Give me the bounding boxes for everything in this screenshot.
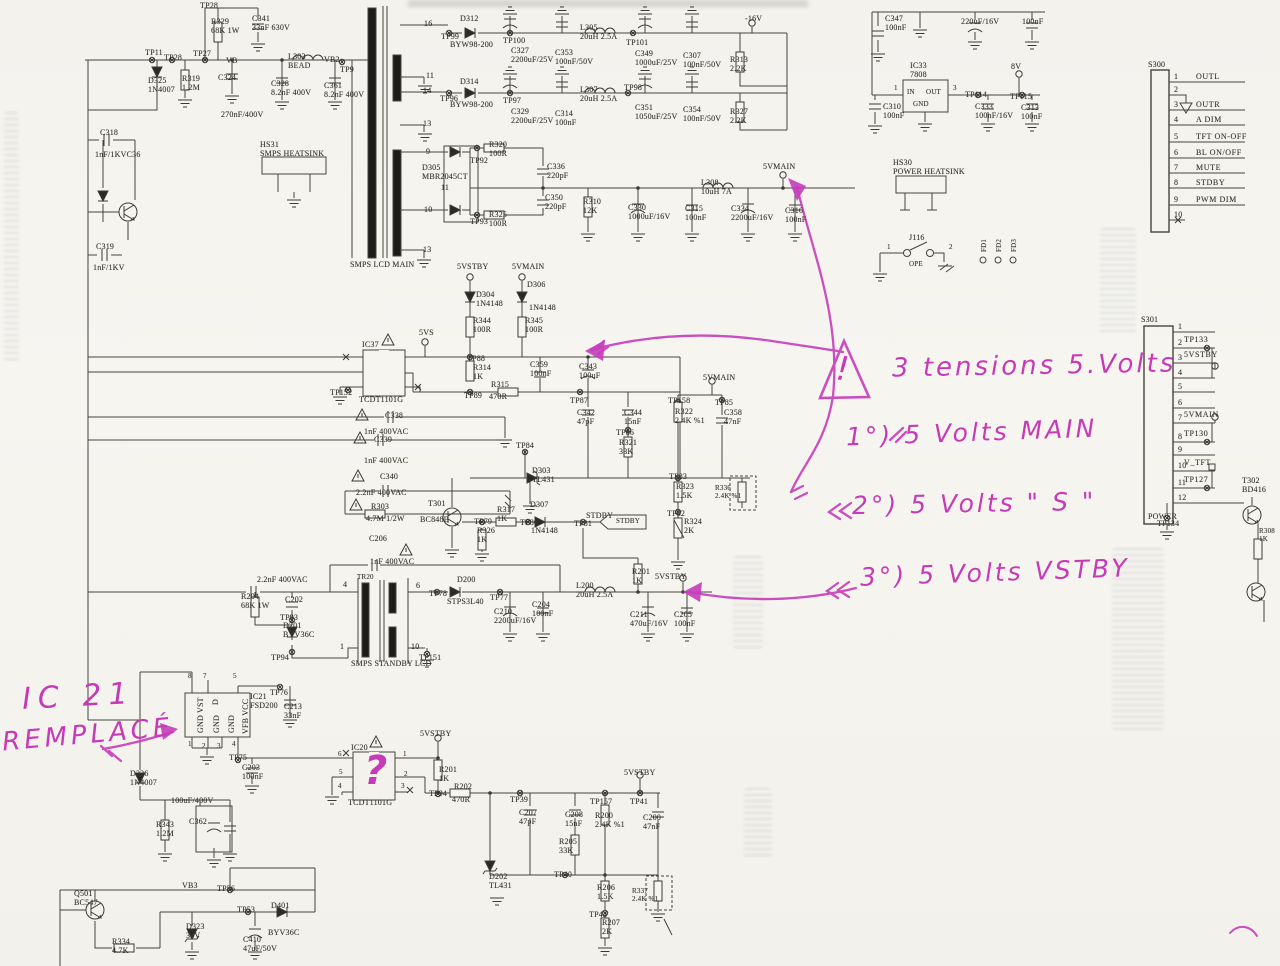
component-label: R334 4.7K <box>112 937 130 956</box>
component-label: TP158 <box>668 396 690 405</box>
component-label: D323 33V <box>186 922 205 941</box>
component-label: FD3 <box>1010 239 1018 252</box>
component-label: TP93 <box>470 217 488 226</box>
component-label: TP28 <box>164 53 182 62</box>
component-label: 4 <box>338 782 342 790</box>
component-label: FD1 <box>980 239 988 252</box>
component-label: -16V <box>745 14 762 23</box>
component-label: C341 33nF 630V <box>252 14 290 33</box>
component-label: 2 <box>949 243 953 251</box>
component-label: C351 1050uF/25V <box>635 103 677 122</box>
component-label: R325 100R <box>489 210 507 229</box>
s301-pin-number: 5 <box>1178 382 1182 391</box>
component-label: C206 <box>369 534 387 543</box>
component-label: R201 1K <box>632 567 650 586</box>
component-label: TP75 <box>229 753 247 762</box>
component-label: R303 <box>371 502 389 511</box>
component-label: TP97 <box>503 96 521 105</box>
component-label: 8V <box>1011 62 1021 71</box>
s300-pin-label: OUTL <box>1196 72 1220 81</box>
component-label: TP40 <box>554 870 572 879</box>
s301-pin-number: 6 <box>1178 398 1182 407</box>
component-label: 3 <box>953 84 957 92</box>
component-label: STDBY <box>586 511 613 520</box>
component-label: 470R <box>452 795 470 804</box>
component-label: FD2 <box>995 239 1003 252</box>
component-label: 1 <box>188 740 192 748</box>
component-label: TP94 <box>271 653 289 662</box>
component-label: IC37 <box>362 340 379 349</box>
component-label: R324 2K <box>684 517 702 536</box>
component-label: 2 <box>404 770 408 778</box>
connector-name-s301: POWER <box>1148 512 1177 521</box>
component-label: C359 100nF <box>530 360 551 379</box>
component-label: 220uF/16V <box>961 17 999 26</box>
component-label: 4.7M 1/2W <box>366 514 405 523</box>
component-label: D314 <box>460 77 479 86</box>
component-label: VB <box>226 56 238 65</box>
component-label: TP56 <box>217 884 235 893</box>
component-label: GND <box>212 715 221 733</box>
component-label: R207 2K <box>602 918 620 937</box>
component-label: C314 100nF <box>555 109 576 128</box>
component-label: C324 <box>218 73 236 82</box>
component-label: C329 2200uF/25V <box>511 107 553 126</box>
component-label: C353 100nF/50V <box>555 48 593 67</box>
component-label: R317 1K <box>497 505 515 524</box>
handwritten-note-item2: 2°) 5 Volts " S " <box>852 487 1097 520</box>
component-label: R336 2.4K %1 <box>715 484 741 501</box>
component-label: 100uF/400V <box>171 796 213 805</box>
component-label: SMPS LCD MAIN <box>350 260 414 269</box>
component-label: 5VSTBY <box>457 262 488 271</box>
component-label: 10 <box>424 205 432 214</box>
component-label: TP101 <box>626 38 648 47</box>
component-label: R308 1K <box>1259 527 1275 544</box>
s301-pin-number: 3 <box>1178 353 1182 362</box>
component-label: TP89 <box>464 391 482 400</box>
handwritten-exclamation: ! <box>835 349 851 389</box>
component-label: 5VSTBY <box>624 768 655 777</box>
component-label: OPE <box>909 260 923 268</box>
connector-title-s300: S300 <box>1148 60 1165 69</box>
component-label: 1nF/1KV <box>93 263 125 272</box>
component-label: R310 12K <box>583 197 601 216</box>
component-label: R344 100R <box>473 316 491 335</box>
component-label: TP78 <box>429 589 447 598</box>
component-label: C338 <box>385 411 403 420</box>
component-label: R322 2.4K %1 <box>675 407 705 426</box>
component-label: T301 <box>428 499 446 508</box>
component-label: GND <box>913 100 929 108</box>
handwritten-question-mark: ? <box>364 748 387 794</box>
component-label: 3 <box>401 782 405 790</box>
component-label: TP92 <box>470 156 488 165</box>
component-label: D <box>211 699 220 705</box>
connector-title-s301: S301 <box>1141 315 1158 324</box>
component-label: C318 <box>100 128 118 137</box>
s300-pin-number: 5 <box>1174 132 1178 141</box>
component-label: T302 BD416 <box>1242 476 1266 495</box>
s300-pin-number: 8 <box>1174 178 1178 187</box>
handwritten-ic21-ref: IC 21 <box>21 676 135 717</box>
s301-pin-label: TP127 <box>1184 475 1208 484</box>
s300-pin-label: PWM DIM <box>1196 195 1237 204</box>
component-label: C349 1000uF/25V <box>635 49 677 68</box>
component-label: TP115 <box>1010 92 1032 101</box>
component-label: D303 TL431 <box>532 466 555 485</box>
component-label: 1 <box>887 243 891 251</box>
component-label: BC848B <box>420 515 449 524</box>
component-label: R314 1K <box>473 363 491 382</box>
component-label: TP9 <box>340 65 354 74</box>
component-label: L305 20uH 2.5A <box>580 23 617 42</box>
component-label: 2.2nF 400VAC <box>356 488 407 497</box>
component-label: C328 8.2nF 400V <box>271 79 311 98</box>
component-label: R315 <box>491 380 509 389</box>
component-label: STPS3L40 <box>447 597 484 606</box>
s301-pin-label: 5VMAIN <box>1184 410 1219 419</box>
component-label: R200 2.4K %1 <box>595 811 625 830</box>
s301-pin-number: 2 <box>1178 338 1182 347</box>
component-label: C208 15nF <box>565 810 583 829</box>
component-label: TCDT1101G <box>359 395 403 404</box>
component-label: C350 220pF <box>545 193 566 212</box>
component-label: TP76 <box>270 688 288 697</box>
component-label: 5VS <box>419 328 434 337</box>
component-label: 470R <box>489 392 507 401</box>
s301-pin-number: 1 <box>1178 322 1182 331</box>
component-label: SMPS STANDBY LCD <box>351 659 432 668</box>
s301-pin-number: 12 <box>1178 493 1186 502</box>
component-label: C210 2200uF/16V <box>494 607 536 626</box>
component-label: 5VMAIN <box>703 373 735 382</box>
component-label: 6 <box>416 581 420 590</box>
component-label: TP100 <box>503 36 525 45</box>
component-label: 100nF <box>1022 17 1043 26</box>
component-label: TR20 <box>357 573 374 581</box>
component-label: TP27 <box>193 49 211 58</box>
s300-pin-number: 7 <box>1174 163 1178 172</box>
component-label: C410 47uF/50V <box>243 935 277 954</box>
component-label: C327 2200uF/25V <box>511 46 553 65</box>
component-label: C339 <box>374 435 392 444</box>
component-label: 5 <box>233 672 237 680</box>
component-label: 5VMAIN <box>763 162 795 171</box>
component-label: 3 <box>217 742 221 750</box>
component-label: C200 47nF <box>643 813 661 832</box>
component-label: TP11 <box>145 48 163 57</box>
component-label: VB3 <box>182 881 198 890</box>
component-label: HS30 POWER HEATSINK <box>893 158 965 177</box>
component-label: D200 <box>457 575 476 584</box>
component-label: C313 100nF <box>1021 103 1042 122</box>
component-label: HS31 SMPS HEATSINK <box>260 140 324 159</box>
component-label: C204 100nF <box>532 600 553 619</box>
component-label: OUT <box>926 88 941 96</box>
s300-pin-number: 2 <box>1174 85 1178 94</box>
s300-pin-label: STDBY <box>1196 178 1225 187</box>
component-label: 2.2nF 400VAC <box>257 575 308 584</box>
component-label: R343 1.2M <box>156 820 174 839</box>
component-label: 7 <box>203 672 207 680</box>
component-label: C207 47pF <box>519 808 537 827</box>
component-label: L307 20uH 2.5A <box>580 85 617 104</box>
component-label: TP53 <box>237 905 255 914</box>
component-label: D312 <box>460 14 479 23</box>
component-label: D401 <box>271 901 290 910</box>
component-label: D307 <box>530 500 549 509</box>
component-label: R206 1.5K <box>597 883 615 902</box>
component-label: TP98 <box>624 83 642 92</box>
component-label: C315 100nF <box>685 204 706 223</box>
component-label: GND <box>227 715 236 733</box>
component-label: TCDT1101G <box>348 798 392 807</box>
component-label: R326 1K <box>477 526 495 545</box>
component-label: C336 220pF <box>547 162 568 181</box>
component-label: C334 2200uF/16V <box>731 204 773 223</box>
component-label: C310 100nF <box>883 102 904 121</box>
component-label: C307 100nF/50V <box>683 51 721 70</box>
component-label: 11 <box>426 71 434 80</box>
component-label: TP41 <box>630 797 648 806</box>
component-label: BYW98-200 <box>450 100 493 109</box>
component-label: TP152 <box>330 388 352 397</box>
component-label: C333 100nF/16V <box>975 102 1013 121</box>
component-label: R321 33K <box>619 438 637 457</box>
component-label: L308 10uH 7A <box>701 178 732 197</box>
component-label: D306 <box>527 280 546 289</box>
component-label: TP84 <box>516 441 534 450</box>
component-label: 14 <box>423 86 431 95</box>
component-label: D304 1N4148 <box>476 290 503 309</box>
component-label: TP82 <box>667 509 685 518</box>
component-label: R327 2.2K <box>730 107 748 126</box>
s300-pin-number: 3 <box>1174 100 1178 109</box>
component-label: D325 1N4007 <box>148 76 175 95</box>
component-label: C213 33nF <box>284 702 302 721</box>
component-label: L200 20uH 2.5A <box>576 581 613 600</box>
s300-pin-label: BL ON/OFF <box>1196 148 1242 157</box>
component-label: J116 <box>909 233 925 242</box>
schematic-page: TP28TP11TP28TP27VBR329 68K 1WC341 33nF 6… <box>0 0 1280 966</box>
component-label: TP77 <box>490 593 508 602</box>
component-label: 4 <box>232 740 236 748</box>
component-label: TP86 <box>616 428 634 437</box>
component-label: 6 <box>338 750 342 758</box>
component-label: R313 2.2K <box>730 55 748 74</box>
component-label: 8 <box>188 672 192 680</box>
component-label: 1 <box>894 84 898 92</box>
s301-pin-label: TP133 <box>1184 335 1208 344</box>
component-label: C361 8.2nF 400V <box>324 81 364 100</box>
component-label: 270nF/400V <box>221 110 263 119</box>
component-label: BYW98-200 <box>450 40 493 49</box>
component-label: 5VSTBY <box>655 572 686 581</box>
component-label: R204 68K 1W <box>241 592 270 611</box>
component-label: D326 1N4007 <box>130 769 157 788</box>
component-label: 5VMAIN <box>512 262 544 271</box>
s301-pin-number: 8 <box>1178 432 1182 441</box>
component-label: R337 2.4K %1 <box>632 887 658 904</box>
component-label: C344 15nF <box>624 408 642 427</box>
component-label: C340 <box>380 472 398 481</box>
component-label: IC33 7808 <box>910 61 927 80</box>
component-label: R202 <box>454 782 472 791</box>
component-label: 1N4148 <box>529 303 556 312</box>
component-label: R205 33K <box>559 837 577 856</box>
component-label: VB2 <box>324 55 340 64</box>
s300-pin-number: 6 <box>1174 148 1178 157</box>
component-label: 1nF 400VAC <box>364 456 408 465</box>
s300-pin-number: 4 <box>1174 115 1178 124</box>
component-label: 5 <box>339 768 343 776</box>
component-label: 16 <box>424 19 432 28</box>
component-label: C205 100nF <box>674 610 695 629</box>
component-label: D201 BYV36C <box>283 621 314 640</box>
component-label: R323 1.5K <box>676 482 694 501</box>
component-label: 10 <box>411 642 419 651</box>
component-label: VFB VCC <box>241 699 250 734</box>
component-label: TP83 <box>669 472 687 481</box>
component-label: R319 1.2M <box>182 74 200 93</box>
component-label: 1nF 400VAC <box>370 557 414 566</box>
component-label: TP157 <box>590 797 612 806</box>
component-label: 1 <box>340 642 344 651</box>
s301-pin-number: 7 <box>1178 413 1182 422</box>
component-label: 13 <box>423 245 431 254</box>
component-label: TP39 <box>510 795 528 804</box>
s300-pin-label: OUTR <box>1196 100 1220 109</box>
component-label: GND VST <box>196 697 205 733</box>
component-label: 9 <box>426 147 430 156</box>
component-label: 11 <box>441 183 449 192</box>
s301-pin-label: V_TFT <box>1184 458 1211 467</box>
component-label: 5VSTBY <box>420 729 451 738</box>
component-label: C203 100nF <box>242 763 263 782</box>
component-label: C362 <box>189 817 207 826</box>
component-label: C347 100nF <box>885 14 906 33</box>
component-label: STDBY <box>616 517 640 525</box>
component-label: C211 470uF/16V <box>630 610 668 629</box>
component-label: 1 <box>403 750 407 758</box>
component-label: C343 100uF <box>579 362 600 381</box>
component-label: TP114 <box>965 90 987 99</box>
component-label: C354 100nF/50V <box>683 105 721 124</box>
s301-pin-label: 5VSTBY <box>1184 350 1218 359</box>
s300-pin-label: TFT ON-OFF <box>1196 132 1247 141</box>
component-label: L303 BEAD <box>288 52 311 71</box>
component-label: TP28 <box>200 1 218 10</box>
component-label: 4 <box>343 580 347 589</box>
s300-pin-number: 9 <box>1174 195 1178 204</box>
component-label: C316 100nF <box>785 206 806 225</box>
s300-pin-label: MUTE <box>1196 163 1221 172</box>
component-label: 2 <box>202 742 206 750</box>
s301-pin-number: 4 <box>1178 368 1182 377</box>
component-label: R329 68K 1W <box>211 17 240 36</box>
component-labels-layer: TP28TP11TP28TP27VBR329 68K 1WC341 33nF 6… <box>0 0 1280 966</box>
s301-pin-number: 9 <box>1178 445 1182 454</box>
s300-pin-number: 10 <box>1174 210 1182 219</box>
s300-pin-label: A DIM <box>1196 115 1222 124</box>
s301-pin-label: TP130 <box>1184 429 1208 438</box>
component-label: D202 TL431 <box>489 872 512 891</box>
component-label: C330 1000uF/16V <box>628 203 670 222</box>
handwritten-note-heading: 3 tensions 5.Volts <box>892 349 1177 384</box>
component-label: R345 100R <box>525 316 543 335</box>
component-label: IN <box>907 88 915 96</box>
component-label: TP85 <box>715 398 733 407</box>
component-label: 1N4148 <box>531 526 558 535</box>
component-label: TP94 <box>429 789 447 798</box>
component-label: Q501 BC547 <box>74 889 98 908</box>
component-label: C342 47pF <box>577 408 595 427</box>
component-label: TP87 <box>570 396 588 405</box>
component-label: 13 <box>423 119 431 128</box>
component-label: R320 100R <box>489 140 507 159</box>
s300-pin-number: 1 <box>1174 72 1178 81</box>
component-label: 1nF/1KVC36 <box>95 150 141 159</box>
component-label: C319 <box>96 242 114 251</box>
component-label: C202 <box>285 595 303 604</box>
component-label: D305 MBR2045CT <box>422 163 468 182</box>
component-label: C358 47nF <box>724 408 742 427</box>
